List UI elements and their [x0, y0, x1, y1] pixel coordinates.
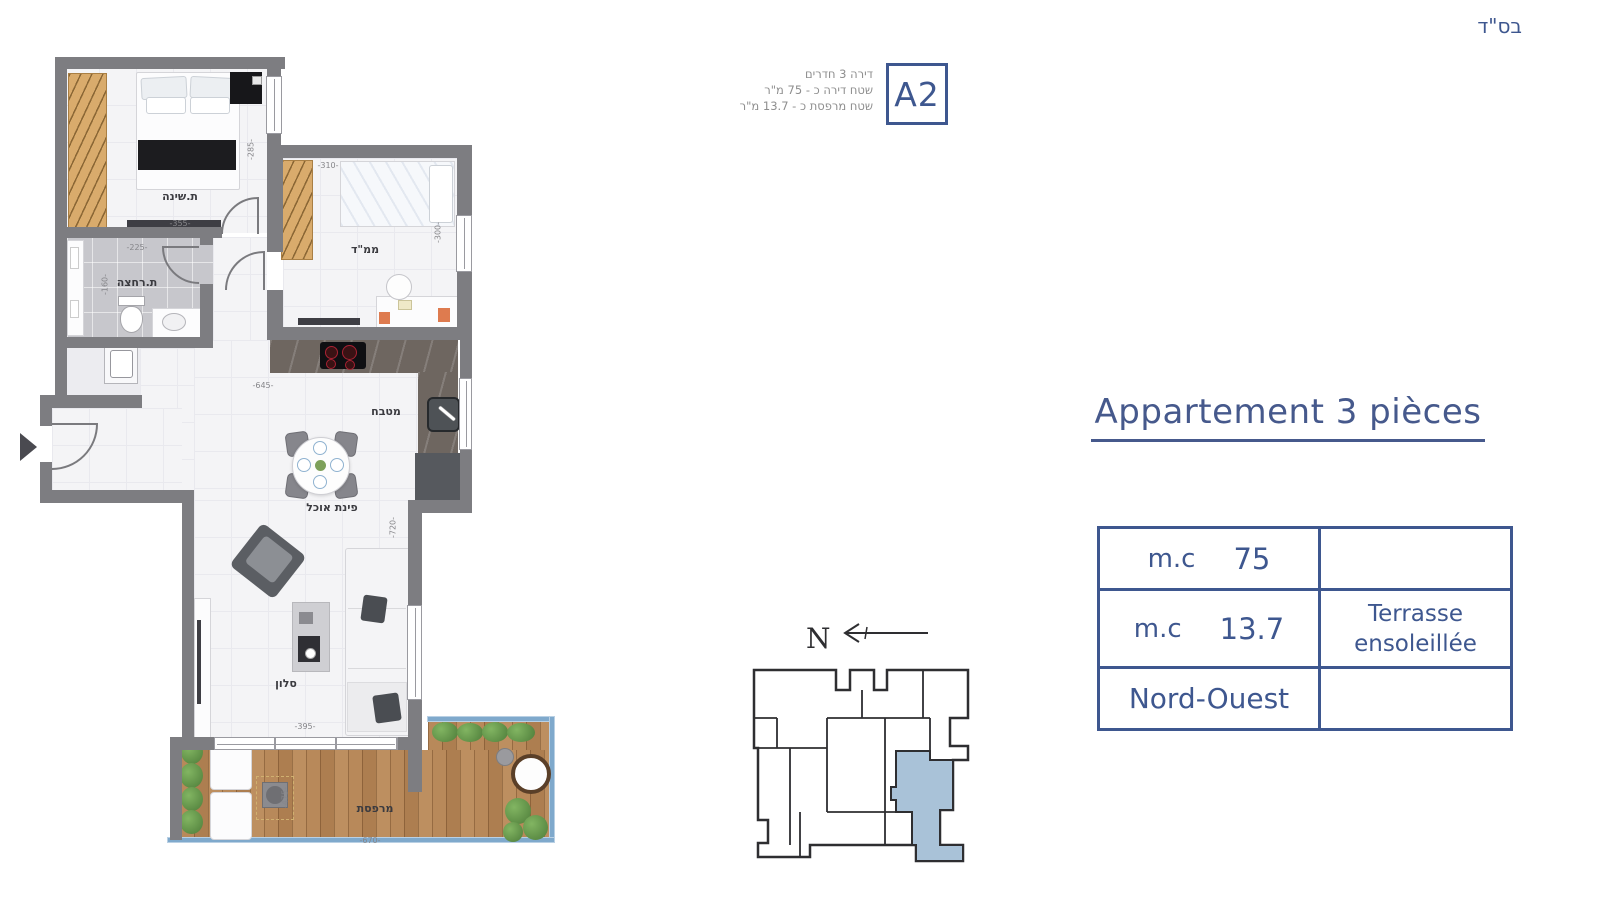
unit-info-block: דירה 3 חדרים שטח דירה כ - 75 מ"ר שטח מרפ… — [655, 66, 873, 114]
info-table: m.c 75 m.c 13.7 Terrasse ensoleillée Nor… — [1097, 526, 1513, 731]
room-label-kitchen: מטבח — [358, 405, 414, 418]
orientation-value: Nord-Ouest — [1129, 682, 1289, 715]
door-arcs — [0, 0, 600, 900]
area-unit-label: m.c — [1148, 544, 1196, 574]
dimension-label: -645- — [240, 381, 286, 390]
page: בס"ד דירה 3 חדרים שטח דירה כ - 75 מ"ר שט… — [0, 0, 1600, 900]
entry-door — [52, 424, 97, 469]
terrace-unit-label: m.c — [1134, 614, 1182, 644]
safe-room-door — [226, 252, 264, 290]
room-label-terrace: מרפסת — [347, 802, 403, 815]
building-key-plan: N — [735, 610, 985, 880]
dimension-label: -300- — [434, 210, 443, 256]
terrace-note-line-1: Terrasse — [1354, 599, 1477, 629]
table-cell-orientation: Nord-Ouest — [1100, 669, 1321, 728]
unit-code-badge: A2 — [886, 63, 948, 125]
dimension-label: -395- — [282, 722, 328, 731]
table-cell-empty-1 — [1321, 529, 1510, 591]
dimension-label: -720- — [389, 505, 398, 551]
terrace-note-line-2: ensoleillée — [1354, 629, 1477, 659]
bsd-text: בס"ד — [1432, 14, 1522, 38]
dimension-label: -285- — [247, 127, 256, 173]
area-value: 75 — [1233, 542, 1270, 576]
dimension-label: -225- — [114, 243, 160, 252]
room-label-dining: פינת אוכל — [300, 501, 364, 514]
north-arrow-tick — [865, 627, 867, 639]
table-cell-area: m.c 75 — [1100, 529, 1321, 591]
room-label-safe-room: ממ"ד — [340, 243, 390, 256]
terrace-area-value: 13.7 — [1220, 612, 1285, 646]
room-label-bathroom: ת.רחצה — [107, 276, 167, 289]
table-cell-terrace-note: Terrasse ensoleillée — [1321, 591, 1510, 669]
apartment-title: Appartement 3 pièces — [1048, 392, 1528, 432]
room-label-living: סלון — [258, 677, 314, 690]
bedroom-door — [222, 198, 258, 234]
table-cell-empty-2 — [1321, 669, 1510, 728]
apartment-title-text: Appartement 3 pièces — [1091, 392, 1486, 442]
dimension-label: -355- — [157, 219, 203, 228]
unit-info-line-3: שטח מרפסת כ - 13.7 מ"ר — [655, 98, 873, 114]
dimension-label: -670- — [347, 836, 393, 845]
dimension-label: -310- — [305, 161, 351, 170]
bathroom-door — [163, 247, 199, 283]
unit-code: A2 — [894, 75, 940, 114]
room-label-bedroom: ת.שינה — [150, 190, 210, 203]
dimension-label: -475- — [281, 775, 290, 821]
north-label: N — [806, 622, 831, 655]
unit-info-line-2: שטח דירה כ - 75 מ"ר — [655, 82, 873, 98]
table-cell-terrace-area: m.c 13.7 — [1100, 591, 1321, 669]
unit-info-line-1: דירה 3 חדרים — [655, 66, 873, 82]
